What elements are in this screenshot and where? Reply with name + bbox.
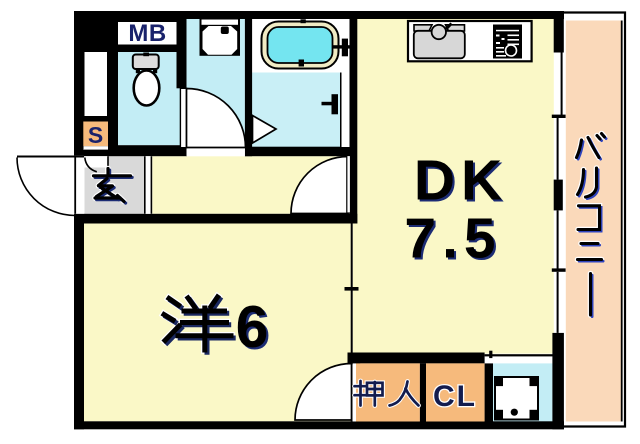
svg-text:7.5: 7.5 — [404, 207, 501, 271]
svg-text:CL: CL — [433, 380, 477, 413]
svg-text:S: S — [88, 122, 103, 148]
svg-text:DK: DK — [414, 149, 508, 213]
svg-text:6: 6 — [236, 294, 269, 360]
svg-text:MB: MB — [128, 20, 166, 47]
